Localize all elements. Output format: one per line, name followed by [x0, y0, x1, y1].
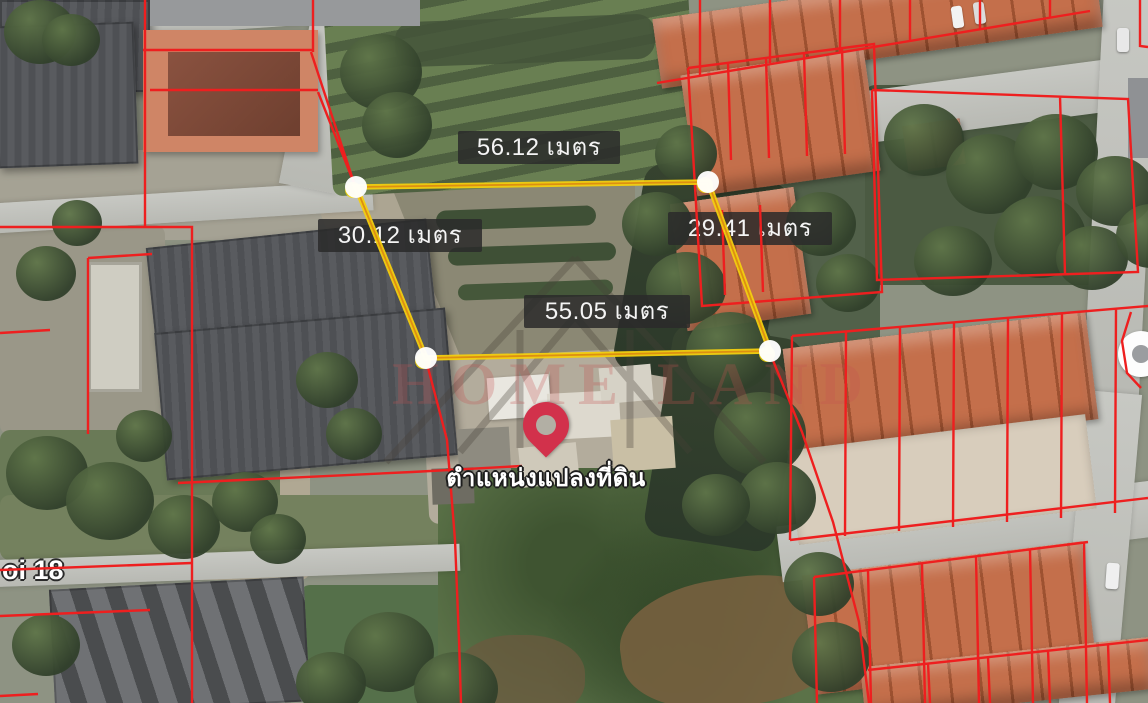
- boundary-overlay: [0, 0, 1148, 703]
- cadastral-lines: [0, 0, 1148, 703]
- plot-outline: [356, 182, 770, 358]
- satellite-map-canvas: HOME LAND 56.12 เมตร 30.12 เมตร 29.41 เม…: [0, 0, 1148, 703]
- location-pin-hole: [532, 411, 560, 439]
- pin-caption: ตำแหน่งแปลงที่ดิน: [433, 458, 659, 497]
